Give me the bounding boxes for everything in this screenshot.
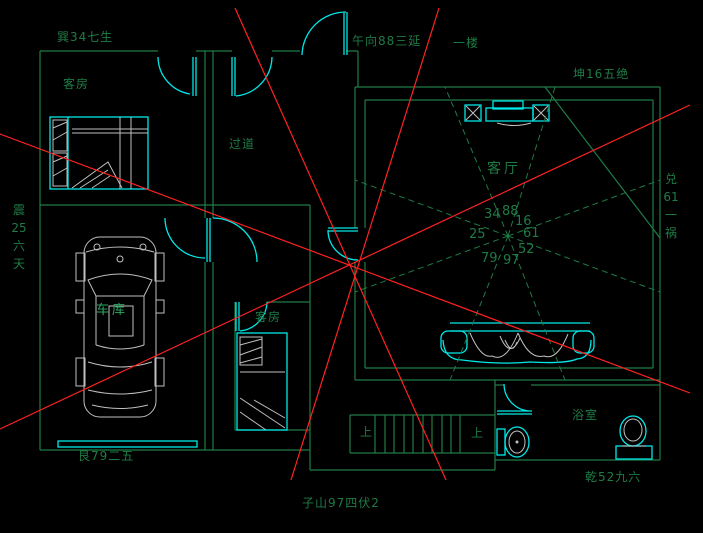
label-zhen: 震 25 六 天 [8, 201, 30, 273]
bed-guest-room-1 [50, 117, 148, 189]
label-qian: 乾52九六 [585, 471, 641, 484]
compass-sw: 79 [481, 252, 498, 266]
label-wu-xiang: 午向88三延 [352, 35, 421, 48]
compass-se: 52 [518, 243, 535, 257]
label-zi-shan: 子山97四伏2 [302, 497, 380, 510]
room-guest-room-2: 客房 [255, 311, 281, 324]
room-guest-room-1: 客房 [63, 78, 89, 91]
label-dui: 兑 61 一 祸 [660, 170, 682, 242]
walls [40, 51, 660, 470]
room-garage: 车库 [96, 304, 128, 318]
room-living-room: 客厅 [487, 162, 521, 177]
compass-w: 25 [469, 228, 486, 242]
room-bathroom: 浴室 [572, 409, 598, 422]
label-xun: 巽34七生 [57, 31, 113, 44]
speaker-left [465, 105, 481, 121]
bed-guest-room-2 [237, 333, 287, 430]
stairs-up-left: 上 [360, 426, 373, 439]
label-kun: 坤16五绝 [573, 68, 629, 81]
speaker-right [533, 105, 549, 121]
compass-nw: 34 [484, 208, 501, 222]
sofa [441, 323, 594, 363]
toilet [616, 416, 652, 459]
floor-plan-canvas: 巽34七生 午向88三延 一楼 坤16五绝 艮79二五 乾52九六 子山97四伏… [0, 0, 703, 533]
sink [497, 427, 529, 457]
room-corridor: 过道 [229, 138, 255, 151]
tv-cabinet [486, 101, 533, 126]
stairs-up-right: 上 [471, 427, 484, 440]
car [76, 237, 164, 417]
label-floor: 一楼 [453, 37, 479, 50]
compass-e: 61 [523, 227, 540, 241]
label-gen: 艮79二五 [78, 450, 134, 463]
doors [158, 12, 532, 414]
garage-door [58, 441, 197, 447]
compass-s: 97 [503, 254, 520, 268]
